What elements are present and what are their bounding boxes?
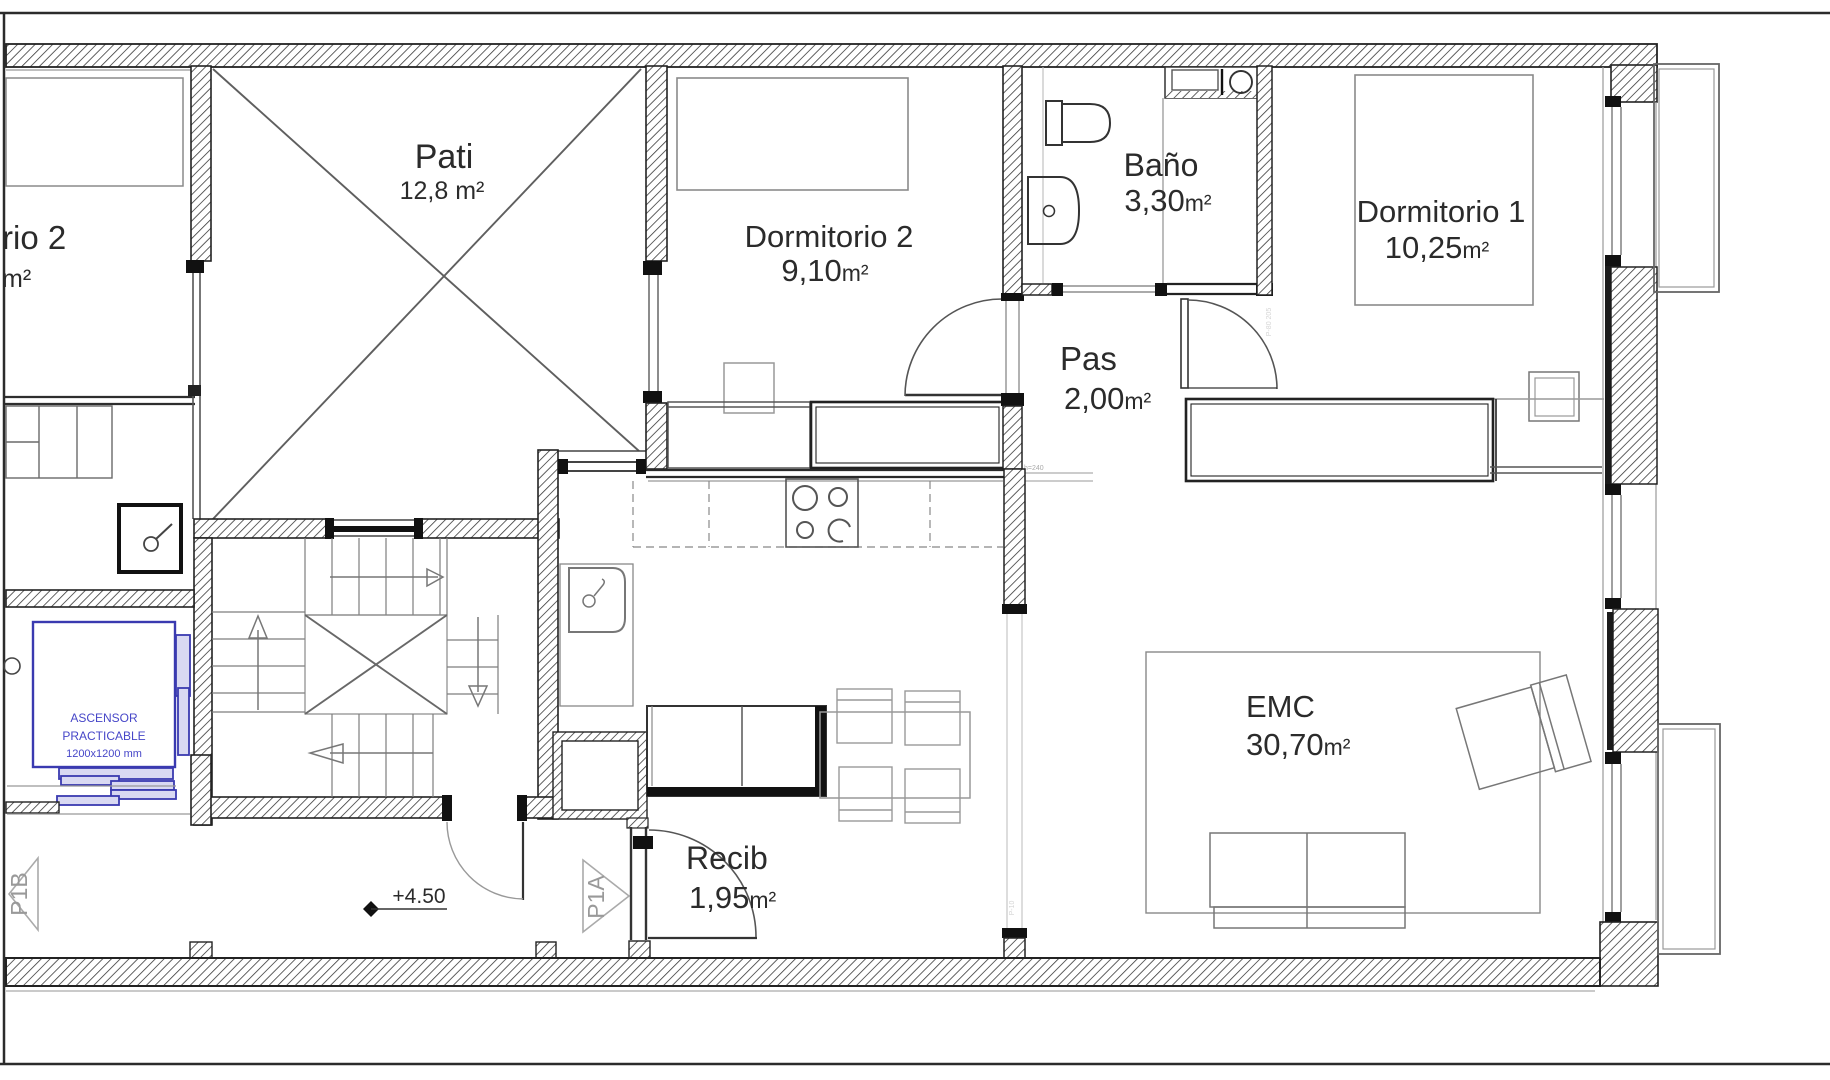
svg-text:1200x1200 mm: 1200x1200 mm — [66, 748, 142, 760]
svg-text:Recib: Recib — [686, 840, 768, 876]
svg-text:PRACTICABLE: PRACTICABLE — [62, 729, 145, 743]
svg-text:h=240: h=240 — [1024, 465, 1044, 472]
svg-text:Pas: Pas — [1060, 340, 1117, 377]
svg-text:P-80 205: P-80 205 — [1266, 308, 1273, 337]
svg-text:+4.50: +4.50 — [392, 885, 445, 908]
svg-text:EMC: EMC — [1246, 689, 1315, 724]
svg-text:ASCENSOR: ASCENSOR — [70, 711, 138, 725]
svg-text:Baño: Baño — [1124, 147, 1199, 183]
svg-text:12,8 m²: 12,8 m² — [400, 177, 485, 205]
svg-text:P1A: P1A — [583, 875, 609, 919]
svg-text:rio 2: rio 2 — [2, 219, 66, 256]
svg-text:m²: m² — [2, 265, 31, 293]
svg-text:P1B: P1B — [6, 872, 32, 915]
svg-text:Pati: Pati — [415, 138, 474, 176]
svg-text:P-10: P-10 — [1009, 901, 1016, 916]
svg-text:Dormitorio 2: Dormitorio 2 — [745, 219, 914, 254]
svg-text:Dormitorio 1: Dormitorio 1 — [1357, 194, 1526, 229]
